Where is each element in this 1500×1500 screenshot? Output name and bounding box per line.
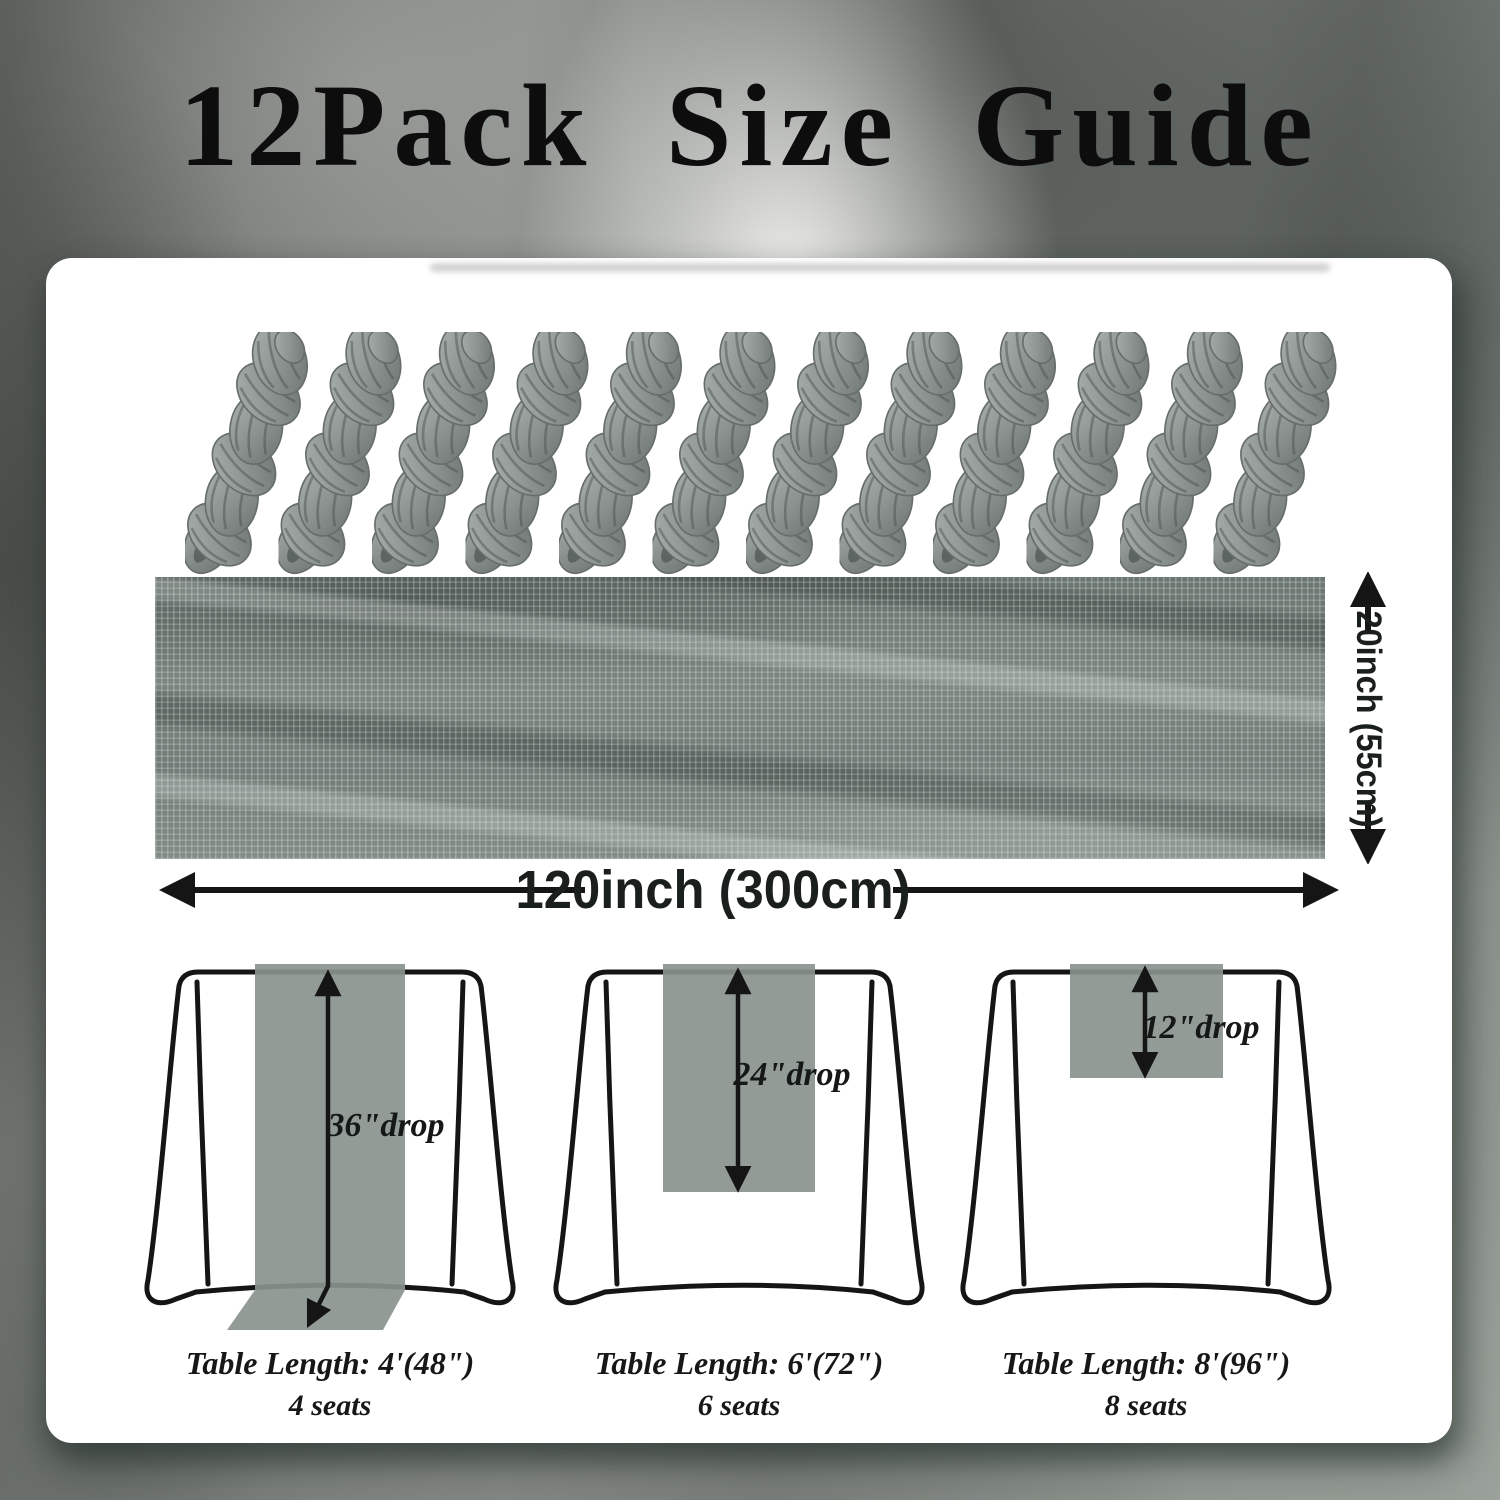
size-guide-panel: 20inch (55cm) 120inch (300cm) 36"drop [46,258,1452,1443]
table-length-label: Table Length: 8'(96") [936,1346,1356,1380]
seats-label: 6 seats [529,1390,949,1422]
table-drawing-4ft [120,950,540,1350]
table-drawing-6ft [529,950,949,1350]
seats-label: 4 seats [120,1390,540,1422]
table-caption-6ft: Table Length: 6'(72") 6 seats [529,1346,949,1422]
drop-label: 12"drop [1142,1009,1259,1047]
drop-label: 24"drop [733,1056,850,1094]
table-caption-4ft: Table Length: 4'(48") 4 seats [120,1346,540,1422]
panel-smudge [430,263,1330,272]
length-dimension-label: 120inch (300cm) [515,862,910,918]
runner-bundles-image [46,330,1452,580]
table-diagram-8ft: 12"drop [936,950,1356,1350]
seats-label: 8 seats [936,1390,1356,1422]
table-length-label: Table Length: 4'(48") [120,1346,540,1380]
table-caption-8ft: Table Length: 8'(96") 8 seats [936,1346,1356,1422]
table-diagram-6ft: 24"drop [529,950,949,1350]
width-dimension-label: 20inch (55cm) [1348,610,1388,827]
page-title: 12Pack Size Guide [0,52,1500,200]
drop-label: 36"drop [327,1107,444,1145]
table-diagram-4ft: 36"drop [120,950,540,1350]
fabric-swatch-image [155,577,1325,859]
page-background: 12Pack Size Guide 20inch (55cm) 120inch … [0,0,1500,1500]
table-length-label: Table Length: 6'(72") [529,1346,949,1380]
